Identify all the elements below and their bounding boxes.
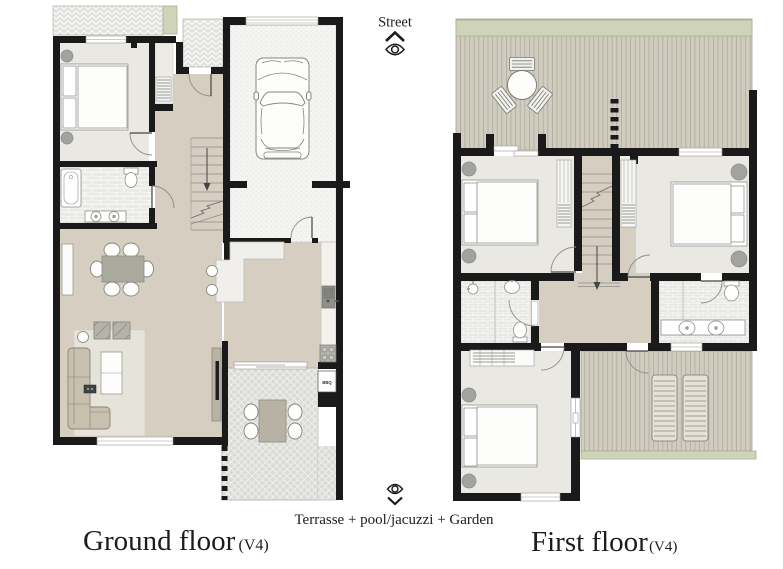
svg-text:Terrasse + pool/jacuzzi + Gard: Terrasse + pool/jacuzzi + Garden (294, 512, 494, 528)
svg-text:Ground floor (V4): Ground floor (V4) (83, 525, 269, 557)
svg-text:First floor (V4): First floor (V4) (531, 526, 677, 558)
svg-text:Street: Street (378, 15, 412, 31)
svg-text:BBQ: BBQ (322, 380, 332, 385)
